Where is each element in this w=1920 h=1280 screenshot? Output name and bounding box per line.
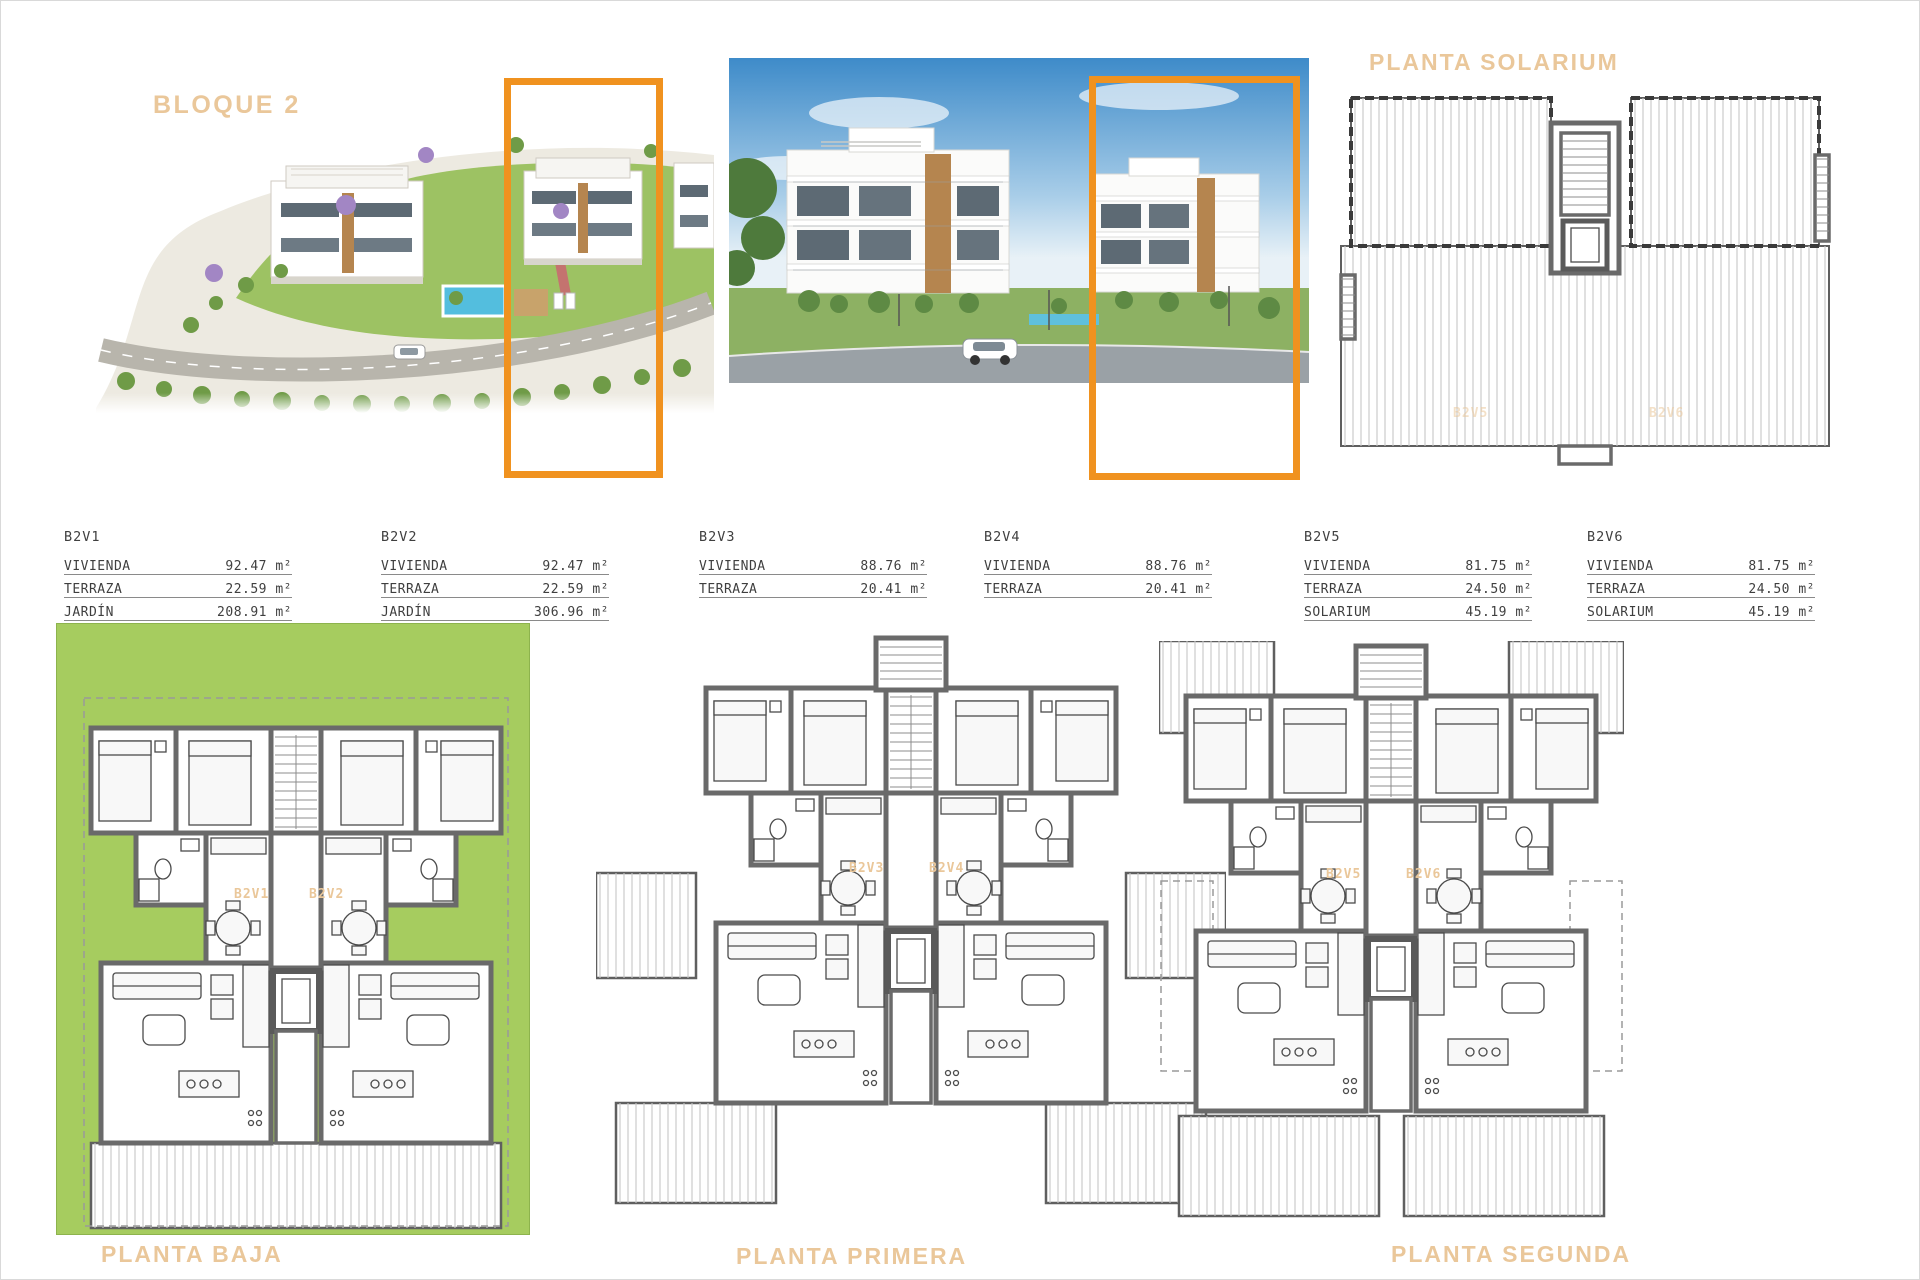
planta-primera-label: PLANTA PRIMERA [736, 1243, 967, 1270]
area-label: VIVIENDA [1587, 559, 1654, 574]
area-label: JARDÍN [381, 605, 431, 620]
elevator-icon [888, 931, 934, 991]
area-row: VIVIENDA88.76 m² [984, 552, 1212, 575]
elevator-icon [273, 971, 319, 1031]
area-value: 45.19 m² [1748, 605, 1815, 620]
primera-unit-tag: B2V3 [849, 861, 884, 876]
area-label: VIVIENDA [984, 559, 1051, 574]
area-value: 88.76 m² [1145, 559, 1212, 574]
area-row: TERRAZA20.41 m² [984, 575, 1212, 598]
planta-baja-floor-plan [76, 673, 516, 1233]
terrace-deck [1631, 98, 1819, 246]
unit-id: B2V4 [984, 529, 1212, 545]
stair-tower [1356, 646, 1426, 698]
area-row: VIVIENDA88.76 m² [699, 552, 927, 575]
area-row: SOLARIUM45.19 m² [1304, 598, 1532, 621]
planta-segunda-label: PLANTA SEGUNDA [1391, 1241, 1631, 1268]
terrace-deck [596, 873, 696, 978]
area-value: 22.59 m² [542, 582, 609, 597]
stair-core [886, 688, 936, 1103]
area-row: TERRAZA24.50 m² [1587, 575, 1815, 598]
left-building [787, 128, 1009, 293]
stair-core [271, 728, 321, 1143]
unit-table-b2v3: B2V3 VIVIENDA88.76 m² TERRAZA20.41 m² [699, 529, 927, 598]
area-value: 81.75 m² [1748, 559, 1815, 574]
area-label: TERRAZA [1587, 582, 1645, 597]
area-value: 88.76 m² [860, 559, 927, 574]
stair-core [1366, 696, 1416, 1111]
apartment-left [91, 728, 271, 1143]
area-label: VIVIENDA [64, 559, 131, 574]
unit-table-b2v6: B2V6 VIVIENDA81.75 m² TERRAZA24.50 m² SO… [1587, 529, 1815, 621]
area-value: 92.47 m² [225, 559, 292, 574]
area-row: VIVIENDA81.75 m² [1587, 552, 1815, 575]
area-label: VIVIENDA [381, 559, 448, 574]
area-label: VIVIENDA [1304, 559, 1371, 574]
highlight-rect-street [1089, 76, 1300, 480]
solarium-unit-tag: B2V5 [1453, 406, 1488, 421]
terrace-deck [1179, 1116, 1379, 1216]
stair-core [1551, 123, 1619, 273]
area-value: 20.41 m² [1145, 582, 1212, 597]
apartment-right [936, 688, 1116, 1103]
building-cluster-3 [674, 163, 714, 248]
area-row: SOLARIUM45.19 m² [1587, 598, 1815, 621]
unit-id: B2V1 [64, 529, 292, 545]
area-label: TERRAZA [1304, 582, 1362, 597]
unit-id: B2V6 [1587, 529, 1815, 545]
unit-id: B2V3 [699, 529, 927, 545]
primera-unit-tag: B2V4 [929, 861, 964, 876]
unit-table-b2v5: B2V5 VIVIENDA81.75 m² TERRAZA24.50 m² SO… [1304, 529, 1532, 621]
planta-baja-label: PLANTA BAJA [101, 1241, 283, 1268]
planta-primera-floor-plan [596, 633, 1226, 1228]
terrace-deck [91, 1143, 501, 1228]
area-value: 81.75 m² [1465, 559, 1532, 574]
area-row: JARDÍN208.91 m² [64, 598, 292, 621]
area-label: TERRAZA [699, 582, 757, 597]
area-row: TERRAZA24.50 m² [1304, 575, 1532, 598]
baja-unit-tag: B2V1 [234, 887, 269, 902]
building-cluster-1 [271, 166, 423, 284]
area-row: TERRAZA22.59 m² [381, 575, 609, 598]
area-value: 20.41 m² [860, 582, 927, 597]
area-value: 22.59 m² [225, 582, 292, 597]
segunda-unit-tag: B2V5 [1326, 867, 1361, 882]
area-value: 24.50 m² [1465, 582, 1532, 597]
unit-table-b2v1: B2V1 VIVIENDA92.47 m² TERRAZA22.59 m² JA… [64, 529, 292, 621]
solarium-unit-tag: B2V6 [1649, 406, 1684, 421]
baja-unit-tag: B2V2 [309, 887, 344, 902]
area-row: VIVIENDA92.47 m² [64, 552, 292, 575]
area-label: TERRAZA [381, 582, 439, 597]
apartment-left [706, 688, 886, 1103]
unit-table-b2v2: B2V2 VIVIENDA92.47 m² TERRAZA22.59 m² JA… [381, 529, 609, 621]
area-row: JARDÍN306.96 m² [381, 598, 609, 621]
area-label: TERRAZA [64, 582, 122, 597]
area-label: TERRAZA [984, 582, 1042, 597]
solarium-title: PLANTA SOLARIUM [1369, 49, 1619, 76]
area-row: VIVIENDA92.47 m² [381, 552, 609, 575]
unit-id: B2V5 [1304, 529, 1532, 545]
area-label: JARDÍN [64, 605, 114, 620]
terrace-deck [1351, 98, 1551, 246]
area-label: VIVIENDA [699, 559, 766, 574]
unit-id: B2V2 [381, 529, 609, 545]
area-row: VIVIENDA81.75 m² [1304, 552, 1532, 575]
solarium-floor-plan [1339, 93, 1831, 505]
area-row: TERRAZA22.59 m² [64, 575, 292, 598]
area-value: 306.96 m² [534, 605, 609, 620]
area-row: TERRAZA20.41 m² [699, 575, 927, 598]
bloque-label: BLOQUE 2 [153, 91, 301, 120]
apartment-right [321, 728, 501, 1143]
highlight-rect-aerial [504, 78, 663, 478]
unit-table-b2v4: B2V4 VIVIENDA88.76 m² TERRAZA20.41 m² [984, 529, 1212, 598]
terrace-deck [1404, 1116, 1604, 1216]
car [394, 345, 425, 359]
area-value: 92.47 m² [542, 559, 609, 574]
stair-tower [876, 638, 946, 690]
elevator-icon [1368, 939, 1414, 999]
apartment-right [1416, 696, 1596, 1111]
area-label: SOLARIUM [1304, 605, 1371, 620]
area-value: 24.50 m² [1748, 582, 1815, 597]
roof-access [1559, 446, 1611, 464]
area-value: 45.19 m² [1465, 605, 1532, 620]
area-label: SOLARIUM [1587, 605, 1654, 620]
terrace-deck [1341, 246, 1829, 446]
segunda-unit-tag: B2V6 [1406, 867, 1441, 882]
area-value: 208.91 m² [217, 605, 292, 620]
terrace-deck [616, 1103, 776, 1203]
plan-sheet: BLOQUE 2 [0, 0, 1920, 1280]
planta-segunda-floor-plan [1159, 641, 1624, 1236]
